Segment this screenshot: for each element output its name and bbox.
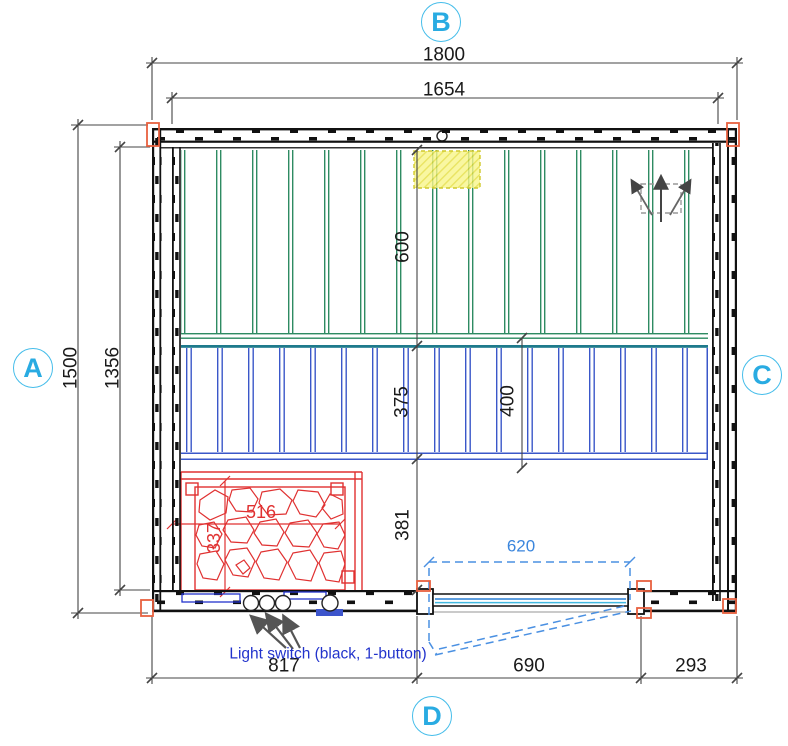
dim-lower-bench-exposed: 375 bbox=[393, 386, 412, 418]
switch-knob bbox=[322, 595, 338, 611]
door-leaf bbox=[433, 594, 628, 606]
dim-lower-bench: 400 bbox=[499, 385, 518, 417]
side-marker-b: B bbox=[421, 2, 461, 42]
dim-segment-door: 690 bbox=[513, 657, 545, 676]
vent-highlight-hatch bbox=[414, 151, 480, 188]
dim-door-width: 620 bbox=[507, 538, 535, 555]
dim-overall-depth: 1500 bbox=[62, 347, 81, 389]
side-marker-a: A bbox=[13, 348, 53, 388]
side-marker-c: C bbox=[742, 355, 782, 395]
side-marker-d: D bbox=[412, 696, 452, 736]
bench-front-edge bbox=[181, 345, 708, 348]
dim-floor-aisle: 381 bbox=[394, 509, 413, 541]
dim-upper-bench: 600 bbox=[394, 231, 413, 263]
light-switch-note: Light switch (black, 1-button) bbox=[229, 646, 426, 662]
dim-inner-width: 1654 bbox=[423, 81, 465, 100]
switch-knob bbox=[244, 596, 259, 611]
dim-segment-right: 293 bbox=[675, 657, 707, 676]
sauna-floor-plan: 1800 1654 1500 1356 600 375 400 381 516 … bbox=[0, 0, 788, 746]
dim-overall-width: 1800 bbox=[423, 46, 465, 65]
door bbox=[417, 557, 644, 655]
lower-bench-boards bbox=[181, 345, 708, 460]
door-jamb-left bbox=[417, 589, 433, 614]
heater-guard-post bbox=[331, 483, 343, 495]
door-width-dim-line bbox=[424, 557, 635, 567]
dim-inner-depth: 1356 bbox=[104, 347, 123, 389]
light-switch-arrows bbox=[252, 615, 300, 649]
heater-guard-post bbox=[342, 571, 354, 583]
dim-heater-depth: 337 bbox=[205, 523, 223, 553]
door-jamb-right bbox=[628, 589, 644, 614]
switch-knob bbox=[276, 596, 291, 611]
switch-knob bbox=[260, 596, 275, 611]
heater-guard-post bbox=[186, 483, 198, 495]
dim-heater-width: 516 bbox=[246, 503, 276, 521]
corner-marker-bottom-left bbox=[141, 600, 153, 616]
